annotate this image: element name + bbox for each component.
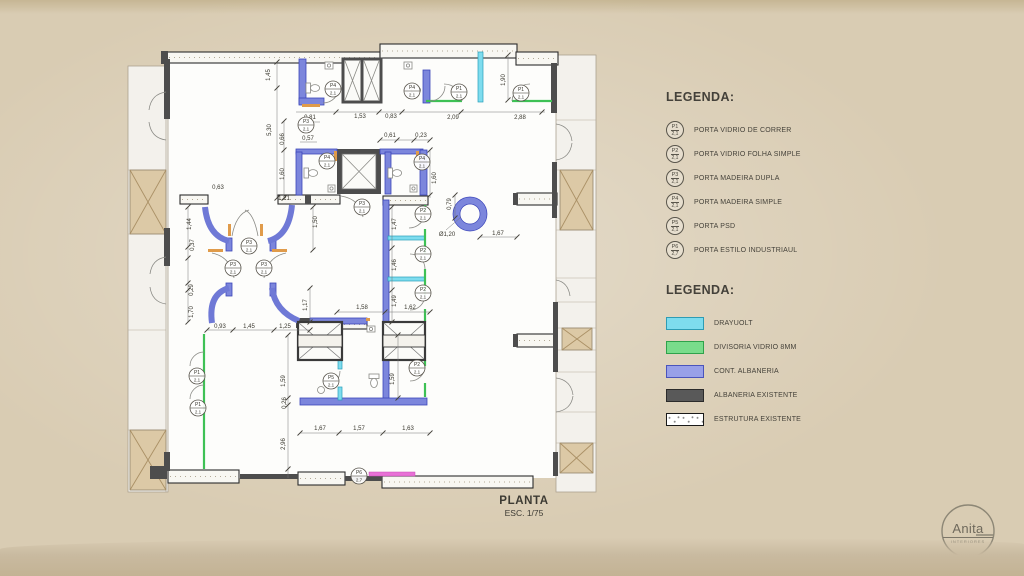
door-legend-label: PORTA MADEIRA SIMPLE — [694, 199, 782, 206]
door-tag-size: 2,1 — [230, 270, 237, 275]
door-legend-item: P22,1PORTA VIDRIO FOLHA SIMPLE — [666, 142, 801, 166]
material-legend-label: DIVISORIA VIDRIO 8MM — [714, 344, 797, 351]
new-wall — [296, 152, 302, 195]
material-legend-label: CONT. ALBANERIA — [714, 368, 779, 375]
dimension-label: 1,46 — [392, 259, 398, 271]
dimension-label: 0,57 — [302, 136, 314, 142]
material-legend: LEGENDA: DRAYUOLTDIVISORIA VIDRIO 8MMCON… — [666, 283, 801, 431]
door-tag-code: P3 — [246, 240, 252, 246]
new-wall — [299, 98, 324, 105]
dimension-label: 1,50 — [313, 216, 319, 228]
dimension-label: 5,30 — [267, 124, 273, 136]
title-block: PLANTA ESC. 1/75 — [482, 495, 566, 518]
door-tag: P62,7 — [351, 468, 367, 484]
door-legend-title: LEGENDA: — [666, 90, 801, 104]
dimension-label: 1,45 — [243, 324, 255, 330]
plan-scale: ESC. 1/75 — [482, 508, 566, 518]
dimension-label: 1,17 — [303, 299, 309, 311]
existing-wall — [150, 466, 167, 479]
existing-column — [130, 430, 166, 490]
material-legend-item: DIVISORIA VIDRIO 8MM — [666, 335, 801, 359]
dimension-label: 0,66 — [280, 133, 286, 145]
door-legend-item: P42,1PORTA MADEIRA SIMPLE — [666, 190, 801, 214]
door-legend-label: PORTA MADEIRA DUPLA — [694, 175, 780, 182]
door-tag: P32,1 — [298, 117, 314, 133]
dimension-label: 0,61 — [384, 133, 396, 139]
dimension-label: 2,96 — [281, 438, 287, 450]
material-swatch — [666, 389, 704, 402]
door-tag-size: 2,1 — [195, 410, 202, 415]
door-tag-code: P1 — [671, 124, 680, 131]
door-tag-code: P2 — [420, 208, 426, 214]
material-legend-items: DRAYUOLTDIVISORIA VIDRIO 8MMCONT. ALBANE… — [666, 311, 801, 431]
dimension-label: 1,60 — [280, 168, 286, 180]
material-legend-item: ESTRUTURA EXISTENTE — [666, 407, 801, 431]
door-frame-mark — [228, 224, 231, 236]
door-tag-code: P3 — [303, 119, 309, 125]
material-legend-label: ESTRUTURA EXISTENTE — [714, 416, 801, 423]
sink-icon — [367, 326, 375, 332]
door-legend-item: P52,1PORTA PSD — [666, 214, 801, 238]
door-tag: P32,1 — [354, 199, 370, 215]
material-swatch — [666, 341, 704, 354]
shaft-column-middle — [337, 149, 381, 194]
material-legend-title: LEGENDA: — [666, 283, 801, 297]
door-legend-item: P12,1PORTA VIDRIO DE CORRER — [666, 118, 801, 142]
dimension-label: 2,88 — [514, 115, 526, 121]
existing-structure-wall — [168, 470, 239, 483]
door-tag-size: 2,1 — [672, 203, 679, 209]
logo-name: Anita — [943, 521, 993, 538]
floor-plan-drawing: 1,455,300,661,600,630,810,571,530,832,09… — [0, 0, 1024, 576]
material-legend-label: ALBANERIA EXISTENTE — [714, 392, 798, 399]
door-tag-code: P5 — [671, 220, 680, 227]
door-tag: P42,1 — [404, 83, 420, 99]
dimension-label: 0,23 — [415, 133, 427, 139]
door-tag-size: 2,1 — [330, 91, 337, 96]
door-tag-size: 2,1 — [409, 93, 416, 98]
sink-icon — [410, 185, 417, 192]
existing-wall — [164, 59, 170, 119]
material-legend-item: CONT. ALBANERIA — [666, 359, 801, 383]
door-tag: P22,1 — [415, 206, 431, 222]
door-tag-code: P4 — [324, 155, 330, 161]
dimension-label: 0,29 — [189, 284, 195, 296]
existing-structure-wall — [517, 193, 557, 205]
dimension-label: 1,59 — [390, 373, 396, 385]
door-tag: P32,1 — [241, 238, 257, 254]
industrial-door-p6 — [369, 472, 415, 476]
door-tag-code: P2 — [414, 362, 420, 368]
drywall-segment — [388, 236, 425, 240]
door-tag-size: 2,7 — [672, 251, 679, 257]
door-legend-label: PORTA VIDRIO DE CORRER — [694, 127, 792, 134]
door-tag-size: 2,1 — [420, 256, 427, 261]
drywall-segment — [338, 387, 342, 400]
door-frame-mark — [208, 249, 223, 252]
door-frame-mark — [272, 249, 287, 252]
door-tag-icon: P62,7 — [666, 241, 684, 259]
door-tag-size: 2,1 — [359, 209, 366, 214]
existing-structure-wall — [517, 334, 557, 347]
door-tag-code: P1 — [195, 402, 201, 408]
dimension-label: 1,25 — [279, 324, 291, 330]
door-legend-items: P12,1PORTA VIDRIO DE CORRERP22,1PORTA VI… — [666, 118, 801, 262]
door-tag: P12,1 — [189, 368, 205, 384]
door-tag-code: P1 — [456, 86, 462, 92]
dimension-label: 1,70 — [189, 306, 195, 318]
door-tag-size: 2,1 — [246, 248, 253, 253]
door-tag-icon: P42,1 — [666, 193, 684, 211]
door-tag-size: 2,1 — [303, 127, 310, 132]
door-tag-size: 2,1 — [419, 164, 426, 169]
door-tag-size: 2,1 — [672, 155, 679, 161]
dimension-label: 0,37 — [190, 239, 196, 251]
door-legend-label: PORTA PSD — [694, 223, 735, 230]
existing-wall — [553, 302, 558, 372]
sink-icon — [328, 185, 335, 192]
door-tag-size: 2,1 — [194, 378, 201, 383]
door-frame-mark — [302, 104, 320, 107]
door-tag-code: P6 — [671, 244, 680, 251]
existing-column — [130, 170, 166, 234]
door-tag-size: 2,1 — [420, 295, 427, 300]
door-tag-icon: P12,1 — [666, 121, 684, 139]
door-tag-size: 2,1 — [414, 370, 421, 375]
door-tag-code: P3 — [359, 201, 365, 207]
door-tag-code: P1 — [518, 87, 524, 93]
existing-wall — [553, 452, 558, 476]
outer-strip-right — [556, 55, 596, 492]
door-legend-item: P62,7PORTA ESTILO INDUSTRIAUL — [666, 238, 801, 262]
dimension-label: 1,44 — [187, 218, 193, 230]
door-frame-mark — [366, 318, 370, 321]
door-tag: P22,1 — [415, 285, 431, 301]
existing-wall — [305, 195, 311, 204]
dimension-label: 1,63 — [402, 426, 414, 432]
existing-wall — [551, 63, 557, 113]
door-tag-icon: P32,1 — [666, 169, 684, 187]
material-swatch — [666, 317, 704, 330]
door-tag-size: 2,1 — [672, 179, 679, 185]
dimension-label: 1,49 — [392, 295, 398, 307]
drywall-segment — [388, 277, 425, 281]
dimension-label: 1,57 — [353, 426, 365, 432]
door-tag-code: P4 — [409, 85, 415, 91]
door-tag: P12,1 — [513, 85, 529, 101]
door-tag-code: P4 — [330, 83, 336, 89]
door-legend-label: PORTA VIDRIO FOLHA SIMPLE — [694, 151, 801, 158]
dimension-label: 0,79 — [447, 198, 453, 210]
dimension-label: 1,53 — [354, 114, 366, 120]
door-tag-code: P2 — [671, 148, 680, 155]
plan-title: PLANTA — [482, 495, 566, 507]
new-wall — [383, 200, 389, 403]
canvas: 1,455,300,661,600,630,810,571,530,832,09… — [0, 0, 1024, 576]
existing-structure-wall — [382, 476, 533, 488]
door-frame-mark — [260, 224, 263, 236]
door-tag: P42,1 — [325, 81, 341, 97]
dimension-label: 1,67 — [492, 231, 504, 237]
door-tag-code: P4 — [671, 196, 680, 203]
door-tag: P22,1 — [409, 360, 425, 376]
dimension-label: 0,63 — [212, 185, 224, 191]
door-tag: P12,1 — [451, 84, 467, 100]
existing-structure-wall — [383, 196, 428, 205]
dimension-label: 2,09 — [447, 115, 459, 121]
door-tag-code: P4 — [419, 156, 425, 162]
dimension-label: 1,59 — [281, 375, 287, 387]
door-tag-code: P3 — [230, 262, 236, 268]
dimension-label: 1,58 — [356, 305, 368, 311]
door-tag-size: 2,1 — [456, 94, 463, 99]
new-wall — [300, 398, 427, 405]
door-tag-icon: P52,1 — [666, 217, 684, 235]
existing-column — [560, 170, 593, 230]
existing-column — [562, 328, 592, 350]
door-tag-code: P2 — [420, 248, 426, 254]
sink-icon — [404, 62, 412, 69]
background-wash-bottom — [0, 538, 1024, 576]
door-tag-code: P1 — [194, 370, 200, 376]
material-swatch — [666, 365, 704, 378]
sink-icon — [325, 62, 333, 69]
door-legend-item: P32,1PORTA MADEIRA DUPLA — [666, 166, 801, 190]
door-tag-code: P5 — [328, 375, 334, 381]
material-legend-label: DRAYUOLT — [714, 320, 753, 327]
dimension-label: Ø1,20 — [439, 232, 456, 238]
door-tag-size: 2,1 — [672, 227, 679, 233]
door-tag-size: 2,1 — [420, 216, 427, 221]
door-tag-icon: P22,1 — [666, 145, 684, 163]
shaft-columns-top — [343, 59, 381, 102]
door-tag-size: 2,1 — [518, 95, 525, 100]
door-tag: P52,1 — [323, 373, 339, 389]
existing-structure-wall — [180, 195, 208, 204]
dimension-label: 0,93 — [214, 324, 226, 330]
door-tag: P42,1 — [319, 153, 335, 169]
door-tag: P32,1 — [225, 260, 241, 276]
dimension-label: 1,90 — [501, 74, 507, 86]
door-tag: P42,1 — [414, 154, 430, 170]
door-legend-label: PORTA ESTILO INDUSTRIAUL — [694, 247, 797, 254]
existing-structure-wall — [380, 44, 517, 58]
existing-wall — [513, 334, 518, 347]
dimension-label: 1,45 — [266, 69, 272, 81]
door-tag: P12,1 — [190, 400, 206, 416]
dimension-label: 1,60 — [432, 172, 438, 184]
door-tag: P32,1 — [256, 260, 272, 276]
material-legend-item: DRAYUOLT — [666, 311, 801, 335]
existing-wall — [552, 162, 557, 218]
door-tag-code: P6 — [356, 470, 362, 476]
existing-structure-wall — [298, 472, 345, 485]
material-legend-item: ALBANERIA EXISTENTE — [666, 383, 801, 407]
material-swatch — [666, 413, 704, 426]
dimension-label: 0,26 — [282, 397, 288, 409]
door-tag: P22,1 — [415, 246, 431, 262]
existing-wall — [164, 228, 170, 266]
dimension-label: 1,21 — [278, 196, 290, 202]
door-tag-size: 2,1 — [672, 131, 679, 137]
door-tag-size: 2,1 — [324, 163, 331, 168]
door-tag-code: P2 — [420, 287, 426, 293]
existing-wall — [513, 193, 518, 205]
door-tag-code: P3 — [261, 262, 267, 268]
dimension-label: 1,47 — [392, 218, 398, 230]
dimension-label: 1,62 — [404, 305, 416, 311]
door-legend: LEGENDA: P12,1PORTA VIDRIO DE CORRERP22,… — [666, 90, 801, 262]
existing-wall — [240, 474, 298, 479]
new-wall — [423, 70, 430, 103]
drywall-segment — [478, 52, 483, 102]
new-wall — [299, 59, 306, 104]
dimension-label: 0,83 — [385, 114, 397, 120]
outer-strip-left — [128, 66, 168, 492]
door-tag-code: P3 — [671, 172, 680, 179]
existing-column — [560, 443, 593, 473]
door-tag-size: 2,1 — [328, 383, 335, 388]
door-tag-size: 2,7 — [356, 478, 363, 483]
dimension-label: 1,67 — [314, 426, 326, 432]
door-tag-size: 2,1 — [261, 270, 268, 275]
